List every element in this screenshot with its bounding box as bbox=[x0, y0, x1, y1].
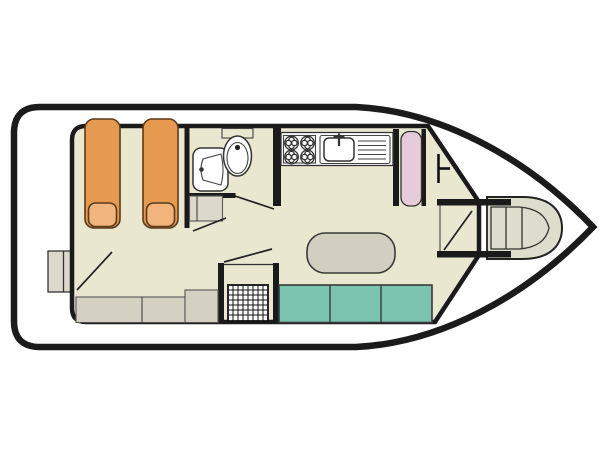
aft-bench-seat bbox=[76, 297, 185, 323]
stove-burner bbox=[285, 150, 299, 164]
bow-deck bbox=[487, 197, 562, 259]
stove-burner bbox=[301, 136, 315, 150]
wall-kitchen-right bbox=[393, 129, 399, 206]
interior-steps bbox=[190, 196, 223, 221]
wall-bathroom-kitchen bbox=[273, 128, 281, 206]
berth-pillow bbox=[89, 203, 117, 227]
three-seat-bench bbox=[279, 285, 432, 323]
stove-burner bbox=[285, 136, 299, 150]
wall-shower-left bbox=[218, 263, 224, 323]
steps-box bbox=[190, 196, 223, 221]
washbasin bbox=[193, 148, 228, 191]
wall-bathroom-left bbox=[185, 128, 190, 228]
stove-burner bbox=[301, 150, 315, 164]
bench-cushions bbox=[279, 285, 432, 323]
floor-plan-canvas bbox=[0, 0, 603, 452]
toilet-flush-button bbox=[235, 145, 240, 150]
single-berth-left bbox=[85, 119, 120, 228]
wall-shower-right bbox=[273, 263, 279, 323]
corner-unit bbox=[185, 290, 218, 323]
wardrobe bbox=[401, 132, 422, 207]
galley bbox=[281, 133, 393, 166]
walkway-wall-bottom bbox=[437, 251, 511, 258]
berth-pillow bbox=[147, 203, 175, 227]
washbasin-tap bbox=[199, 167, 204, 172]
boat-floor-plan bbox=[0, 0, 603, 452]
dinette-table bbox=[307, 233, 395, 273]
bow-deck-platform bbox=[487, 197, 562, 259]
walkway-wall-top bbox=[437, 199, 511, 206]
single-berth-right bbox=[143, 119, 178, 228]
wall-wardrobe-right bbox=[422, 129, 427, 206]
shower-tray bbox=[228, 285, 268, 321]
